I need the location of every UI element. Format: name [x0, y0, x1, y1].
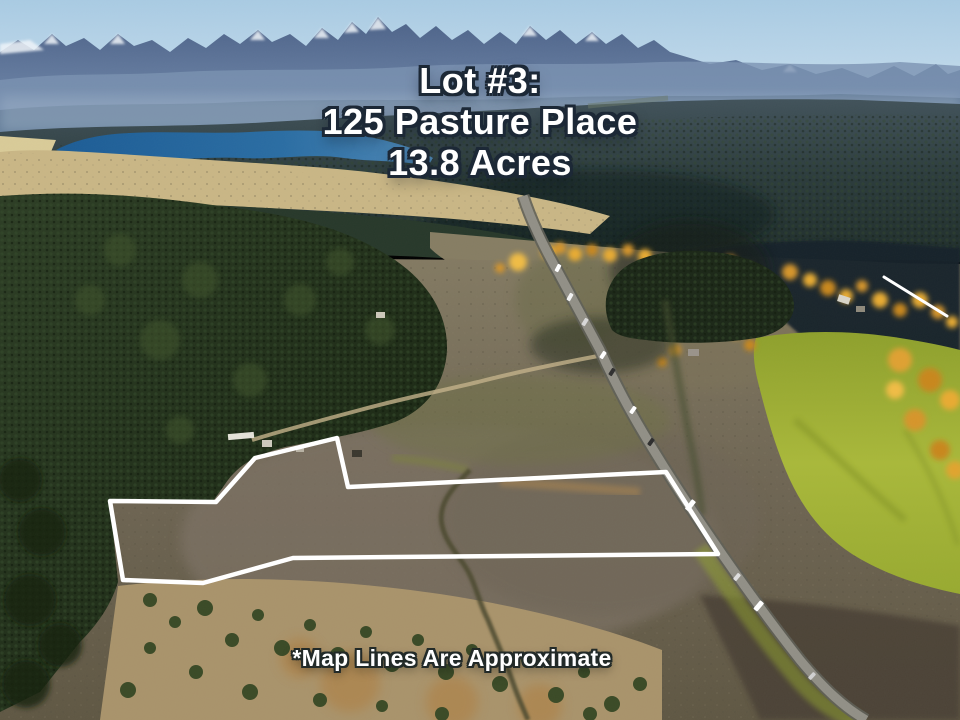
map-lines-disclaimer: *Map Lines Are Approximate — [0, 645, 904, 672]
listing-title: Lot #3: 125 Pasture Place 13.8 Acres — [0, 60, 960, 183]
title-line-acreage: 13.8 Acres — [0, 142, 960, 183]
listing-photo-stage: Lot #3: 125 Pasture Place 13.8 Acres *Ma… — [0, 0, 960, 720]
title-line-address: 125 Pasture Place — [0, 101, 960, 142]
title-line-lot: Lot #3: — [0, 60, 960, 101]
